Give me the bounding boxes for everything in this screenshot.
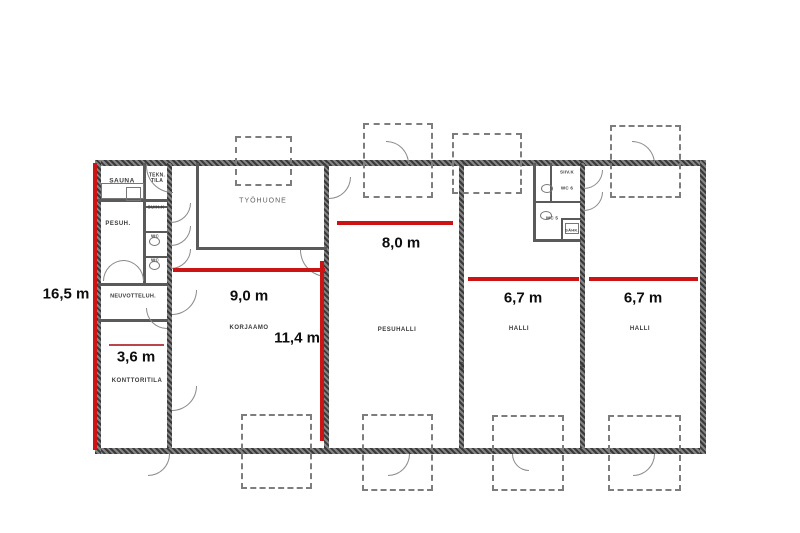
measurement-label: 9,0 m xyxy=(230,288,268,305)
measurement-line xyxy=(109,344,164,346)
measurement-label: 11,4 m xyxy=(274,330,320,347)
measurement-line xyxy=(320,261,324,441)
measurement-label: 16,5 m xyxy=(43,286,90,303)
measurement-line xyxy=(589,277,698,281)
measurement-label: 6,7 m xyxy=(624,290,662,307)
measurement-label: 8,0 m xyxy=(382,235,420,252)
measurement-line xyxy=(337,221,453,225)
measurement-label: 3,6 m xyxy=(117,349,155,366)
measurement-line xyxy=(468,277,579,281)
measurement-line xyxy=(93,163,97,450)
floorplan-canvas: SAUNATEKN. TILAPESUH.SUIH.KWCWCNEUVOTTEL… xyxy=(0,0,800,533)
measurement-line xyxy=(173,268,325,272)
measurement-label: 6,7 m xyxy=(504,290,542,307)
measurements-layer: 16,5 m9,0 m8,0 m11,4 m3,6 m6,7 m6,7 m xyxy=(0,0,800,533)
